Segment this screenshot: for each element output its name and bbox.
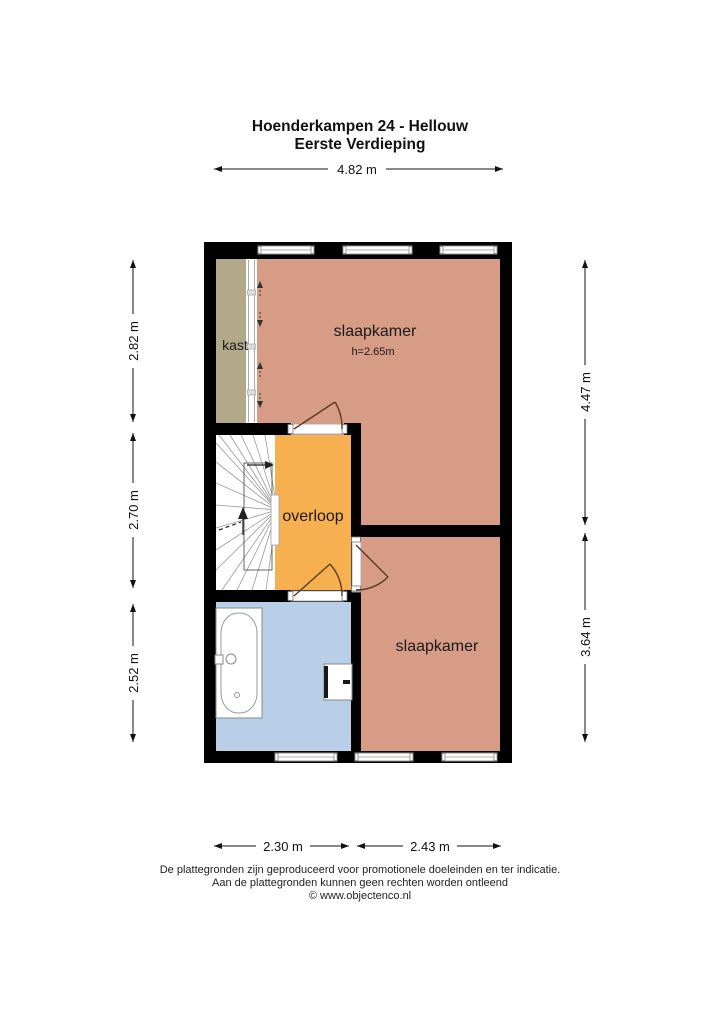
dimension-left-2-label: 2.70 m [126, 490, 141, 530]
window-top-3 [440, 246, 497, 254]
label-bedroom-bottom: slaapkamer [396, 638, 479, 655]
label-ceiling-height: h=2.65m [351, 346, 394, 358]
window-top-1 [258, 246, 314, 254]
floorplan-svg: Hoenderkampen 24 - Hellouw Eerste Verdie… [0, 0, 720, 1017]
dimension-right-1: 4.47 m [578, 260, 593, 525]
plan-title: Hoenderkampen 24 - Hellouw [252, 118, 469, 135]
dimension-left-2: 2.70 m [126, 433, 141, 588]
dimension-right-2: 3.64 m [578, 533, 593, 742]
footer: De plattegronden zijn geproduceerd voor … [160, 864, 561, 902]
bathtub [215, 608, 262, 718]
label-closet: kast [222, 337, 248, 353]
footer-line-1: De plattegronden zijn geproduceerd voor … [160, 864, 561, 876]
footer-line-3: © www.objectenco.nl [309, 890, 411, 902]
plan-subtitle: Eerste Verdieping [295, 136, 426, 153]
dimension-top-label: 4.82 m [337, 162, 377, 177]
window-bottom-2 [355, 753, 413, 761]
dimension-bottom-2: 2.43 m [357, 839, 501, 854]
dimension-bottom-1: 2.30 m [214, 839, 349, 854]
dimension-left-3: 2.52 m [126, 604, 141, 742]
window-bottom-1 [275, 753, 337, 761]
footer-line-2: Aan de plattegronden kunnen geen rechten… [212, 877, 508, 889]
dimension-bottom-1-label: 2.30 m [263, 839, 303, 854]
dimension-right-2-label: 3.64 m [578, 617, 593, 657]
dimension-bottom-2-label: 2.43 m [410, 839, 450, 854]
bathtub-faucet [226, 654, 236, 664]
washing-machine [324, 664, 352, 700]
dimension-top: 4.82 m [214, 162, 503, 177]
dimension-left-1: 2.82 m [126, 260, 141, 422]
bathtub-tap [215, 655, 223, 664]
dimension-left-1-label: 2.82 m [126, 321, 141, 361]
dimension-left-3-label: 2.52 m [126, 653, 141, 693]
label-landing: overloop [282, 508, 343, 525]
floorplan-page: Hoenderkampen 24 - Hellouw Eerste Verdie… [0, 0, 720, 1017]
label-bedroom-top: slaapkamer [334, 323, 417, 340]
floorplan: kast slaapkamer h=2.65m overloop slaapka… [204, 242, 512, 763]
stair-handrail [271, 495, 279, 545]
window-top-2 [343, 246, 412, 254]
window-bottom-3 [442, 753, 497, 761]
room-stairs [216, 435, 275, 590]
dimension-right-1-label: 4.47 m [578, 372, 593, 412]
